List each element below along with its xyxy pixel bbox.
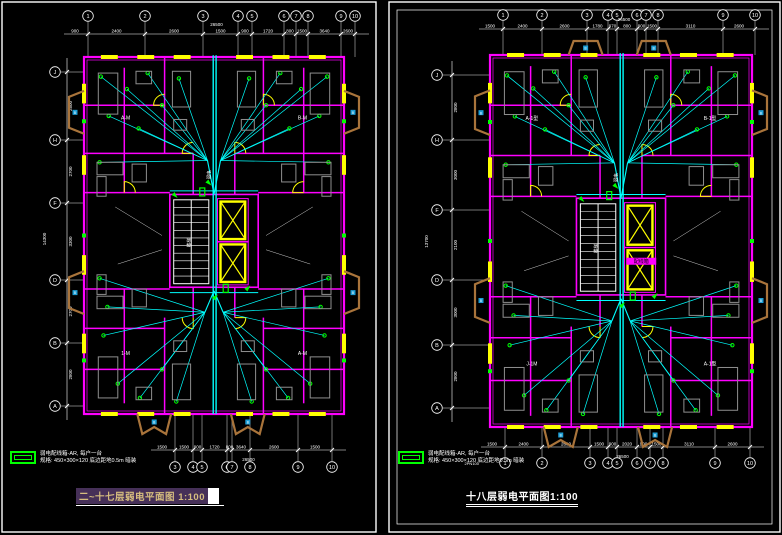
- svg-text:2800: 2800: [453, 102, 458, 113]
- svg-text:2700: 2700: [68, 166, 73, 177]
- svg-text:1720: 1720: [263, 28, 274, 33]
- svg-text:970: 970: [609, 23, 617, 28]
- drawing-title-right-text: 十八层弱电平面图: [466, 492, 550, 503]
- svg-text:7: 7: [294, 14, 297, 20]
- svg-text:2600: 2600: [727, 441, 738, 446]
- svg-text:2800: 2800: [453, 371, 458, 382]
- svg-text:8: 8: [656, 13, 659, 19]
- svg-text:弱电: 弱电: [613, 173, 620, 182]
- windows-layer: [488, 53, 754, 429]
- title-cursor-box: [208, 488, 219, 504]
- svg-text:B: B: [585, 47, 587, 51]
- svg-text:1500: 1500: [179, 444, 190, 449]
- svg-text:800: 800: [623, 23, 631, 28]
- svg-text:6: 6: [635, 461, 638, 467]
- svg-text:900: 900: [194, 444, 202, 449]
- svg-text:4: 4: [606, 13, 609, 19]
- svg-text:弱电: 弱电: [206, 170, 213, 179]
- svg-text:1500: 1500: [297, 28, 308, 33]
- svg-text:2: 2: [540, 461, 543, 467]
- svg-text:3: 3: [201, 14, 204, 20]
- svg-text:4: 4: [191, 465, 194, 471]
- svg-text:A-M: A-M: [121, 115, 130, 121]
- svg-text:2: 2: [540, 13, 543, 19]
- svg-text:3640: 3640: [319, 28, 330, 33]
- svg-text:1500: 1500: [310, 444, 321, 449]
- svg-text:8: 8: [661, 461, 664, 467]
- svg-text:J: J: [54, 70, 57, 76]
- svg-text:B: B: [74, 111, 76, 115]
- svg-text:1500: 1500: [594, 441, 605, 446]
- svg-text:D: D: [53, 278, 57, 284]
- svg-text:2600: 2600: [734, 23, 745, 28]
- drawing-title-right[interactable]: 十八层弱电平面图1:100: [466, 488, 578, 507]
- svg-text:2: 2: [143, 14, 146, 20]
- svg-text:1: 1: [86, 14, 89, 20]
- svg-text:8: 8: [248, 465, 251, 471]
- svg-text:1-M: 1-M: [121, 351, 130, 357]
- svg-text:1720: 1720: [209, 444, 220, 449]
- title-underline: [466, 504, 578, 505]
- svg-text:10: 10: [752, 13, 758, 19]
- svg-text:4: 4: [606, 461, 609, 467]
- drawing-title-right-scale: 1:100: [550, 492, 578, 503]
- wiring-lines: [506, 53, 737, 427]
- svg-text:2600: 2600: [269, 444, 280, 449]
- svg-text:14300: 14300: [42, 232, 47, 245]
- svg-text:10: 10: [329, 465, 335, 471]
- balcony-layer: BBBBBBBB: [475, 41, 767, 447]
- svg-text:2600: 2600: [559, 23, 570, 28]
- svg-text:B-1型: B-1型: [704, 115, 717, 122]
- furniture-layer: [97, 71, 331, 399]
- svg-text:B: B: [654, 434, 656, 438]
- svg-text:26500: 26500: [242, 457, 255, 462]
- svg-text:9: 9: [713, 461, 716, 467]
- svg-text:H: H: [53, 138, 57, 144]
- svg-text:5: 5: [250, 14, 253, 20]
- svg-text:B: B: [352, 291, 354, 295]
- elevator-icon: [218, 199, 249, 285]
- svg-text:B: B: [760, 299, 762, 303]
- svg-text:2400: 2400: [518, 441, 529, 446]
- walls-layer: [84, 57, 344, 414]
- svg-text:10: 10: [747, 461, 753, 467]
- svg-text:3000: 3000: [453, 169, 458, 180]
- svg-text:7: 7: [230, 465, 233, 471]
- legend-line1: 弱电配线箱-AR, 每户一台: [40, 451, 136, 458]
- svg-text:3640: 3640: [236, 444, 247, 449]
- elevator-icon: [625, 203, 656, 293]
- svg-text:A: A: [53, 404, 57, 410]
- svg-text:3: 3: [173, 465, 176, 471]
- svg-text:A: A: [435, 406, 439, 412]
- svg-text:1500: 1500: [487, 441, 498, 446]
- svg-text:800: 800: [286, 28, 294, 33]
- svg-text:D: D: [435, 278, 439, 284]
- svg-text:B: B: [153, 421, 155, 425]
- distribution-box-symbol: [398, 451, 424, 464]
- svg-text:B: B: [653, 47, 655, 51]
- svg-text:1780: 1780: [592, 23, 603, 28]
- drawing-title-left-text: 二~十七层弱电平面图: [79, 492, 175, 503]
- svg-text:2400: 2400: [111, 28, 122, 33]
- room-labels: A-MB-M1-MA-M楼梯弱电: [121, 115, 307, 357]
- svg-text:26500: 26500: [618, 17, 631, 22]
- svg-text:3300: 3300: [68, 236, 73, 247]
- svg-text:B: B: [760, 111, 762, 115]
- axis-top: 1240022600315004900517206800715008364092…: [64, 11, 369, 57]
- svg-text:7: 7: [648, 461, 651, 467]
- svg-text:1500: 1500: [647, 23, 658, 28]
- svg-text:9: 9: [339, 14, 342, 20]
- svg-text:8: 8: [306, 14, 309, 20]
- svg-text:2400: 2400: [517, 23, 528, 28]
- svg-text:楼梯: 楼梯: [592, 243, 599, 252]
- svg-text:A-M: A-M: [298, 351, 307, 357]
- svg-text:B: B: [480, 299, 482, 303]
- svg-text:5: 5: [200, 465, 203, 471]
- svg-text:J-1M: J-1M: [526, 362, 537, 368]
- axis-top: 1240022600317804970580069007150083110926…: [479, 10, 769, 55]
- svg-text:13700: 13700: [424, 235, 429, 248]
- svg-text:900: 900: [638, 23, 646, 28]
- svg-text:26500: 26500: [210, 22, 223, 27]
- room-labels: A-1型B-1型J-1MA-1型楼梯弱电配线箱: [526, 115, 717, 368]
- drawing-title-left-scale: 1:100: [178, 492, 205, 503]
- title-underline: [466, 506, 578, 507]
- svg-text:B: B: [435, 343, 439, 349]
- svg-text:7: 7: [644, 13, 647, 19]
- svg-text:B: B: [560, 434, 562, 438]
- svg-text:900: 900: [71, 28, 79, 33]
- svg-text:900: 900: [241, 28, 249, 33]
- legend-line2: 规格: 450×300×120 底边距地0.5m 暗装: [428, 458, 524, 465]
- title-underline: [76, 505, 224, 506]
- svg-text:4: 4: [236, 14, 239, 20]
- windows-layer: [82, 55, 346, 416]
- svg-text:2600: 2600: [169, 28, 180, 33]
- svg-text:B: B: [53, 341, 57, 347]
- drawing-title-left[interactable]: 二~十七层弱电平面图 1:100: [76, 488, 224, 506]
- svg-text:1500: 1500: [157, 444, 168, 449]
- svg-text:H: H: [435, 138, 439, 144]
- legend-line2: 规格: 450×300×120 底边距地0.5m 暗装: [40, 458, 136, 465]
- svg-text:6: 6: [635, 13, 638, 19]
- walls-layer: [490, 55, 752, 427]
- svg-text:26500: 26500: [616, 454, 629, 459]
- wiring-lines: [100, 55, 329, 414]
- svg-text:配线箱: 配线箱: [634, 258, 649, 265]
- svg-text:2020: 2020: [622, 441, 633, 446]
- legend-left: 弱电配线箱-AR, 每户一台 规格: 450×300×120 底边距地0.5m …: [10, 451, 136, 465]
- svg-text:J: J: [436, 73, 439, 79]
- svg-text:2100: 2100: [453, 239, 458, 250]
- svg-text:楼梯: 楼梯: [186, 238, 193, 247]
- svg-text:B: B: [74, 291, 76, 295]
- svg-text:3110: 3110: [686, 23, 696, 28]
- svg-text:B: B: [480, 111, 482, 115]
- distribution-box-symbol: [10, 451, 36, 464]
- svg-text:800: 800: [226, 444, 234, 449]
- svg-text:1: 1: [501, 13, 504, 19]
- svg-text:10: 10: [352, 14, 358, 20]
- svg-text:B: B: [247, 421, 249, 425]
- svg-text:3: 3: [585, 13, 588, 19]
- svg-text:1500: 1500: [485, 23, 496, 28]
- svg-text:6: 6: [282, 14, 285, 20]
- svg-text:3: 3: [588, 461, 591, 467]
- cad-workspace: 1240022600315004900517206800715008364092…: [0, 0, 782, 535]
- svg-text:3000: 3000: [453, 307, 458, 318]
- svg-text:2600: 2600: [343, 28, 354, 33]
- svg-text:5: 5: [615, 461, 618, 467]
- svg-text:900: 900: [609, 441, 617, 446]
- svg-text:A-1型: A-1型: [526, 115, 539, 122]
- balcony-layer: BBBBBB: [69, 91, 359, 434]
- legend-line1: 弱电配线箱-AR, 每户一台: [428, 451, 524, 458]
- svg-text:9: 9: [721, 13, 724, 19]
- svg-text:2800: 2800: [68, 369, 73, 380]
- svg-text:A-1型: A-1型: [704, 361, 717, 368]
- axis-left: J2800H2700F3300D2700B2800A14300: [42, 58, 84, 420]
- svg-text:1500: 1500: [215, 28, 226, 33]
- legend-right: 弱电配线箱-AR, 每户一台 规格: 450×300×120 底边距地0.5m …: [398, 451, 524, 465]
- svg-text:B: B: [352, 111, 354, 115]
- svg-text:9: 9: [296, 465, 299, 471]
- svg-text:B-M: B-M: [298, 115, 307, 121]
- svg-text:3110: 3110: [684, 441, 694, 446]
